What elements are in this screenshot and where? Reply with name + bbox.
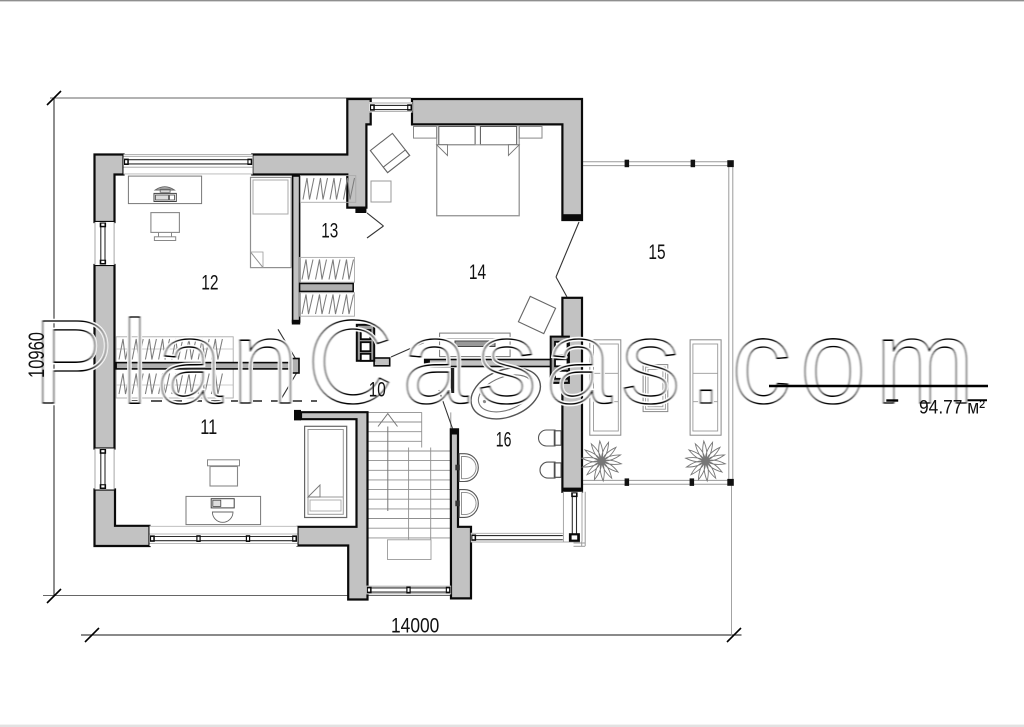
svg-text:15: 15 [648,241,665,264]
svg-text:16: 16 [496,429,512,452]
svg-text:11: 11 [200,416,217,439]
svg-text:14: 14 [469,261,486,284]
svg-text:10960: 10960 [24,332,49,378]
svg-text:12: 12 [201,272,218,295]
svg-text:10: 10 [369,378,386,401]
svg-text:PlanCasas.com: PlanCasas.com [33,296,983,429]
svg-text:13: 13 [321,220,338,243]
svg-text:14000: 14000 [391,613,439,637]
